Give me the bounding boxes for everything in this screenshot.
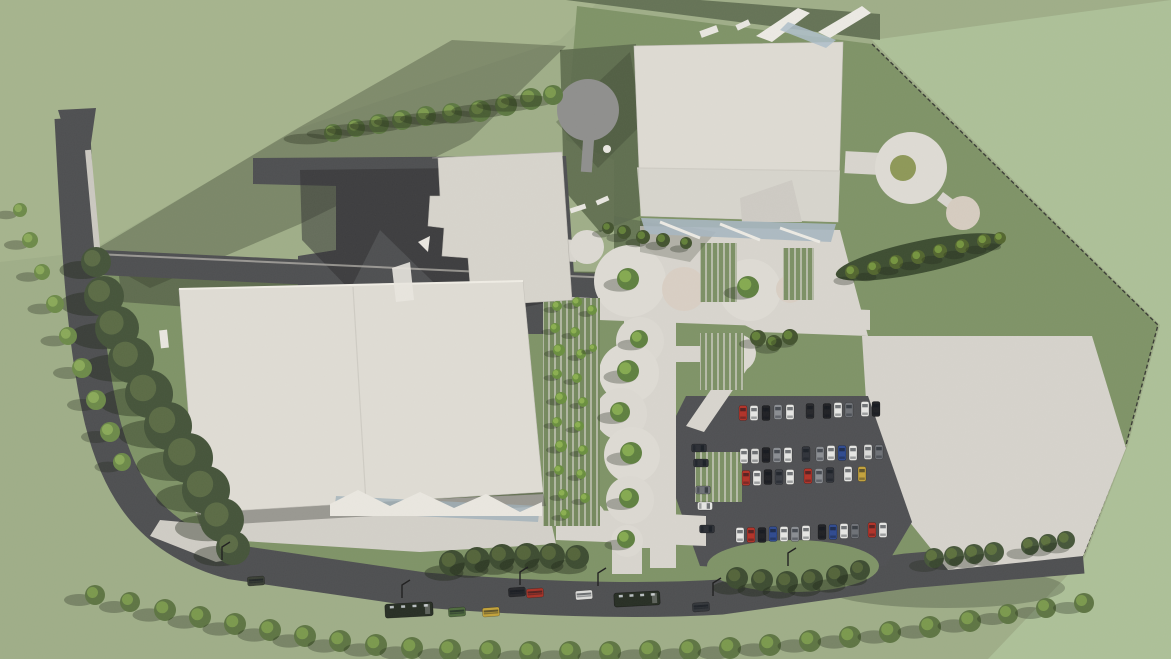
aerial-site-render [0, 0, 1171, 659]
building-west-main [179, 281, 543, 513]
aerial-render-canvas [0, 0, 1171, 659]
building-northeast [634, 42, 843, 222]
